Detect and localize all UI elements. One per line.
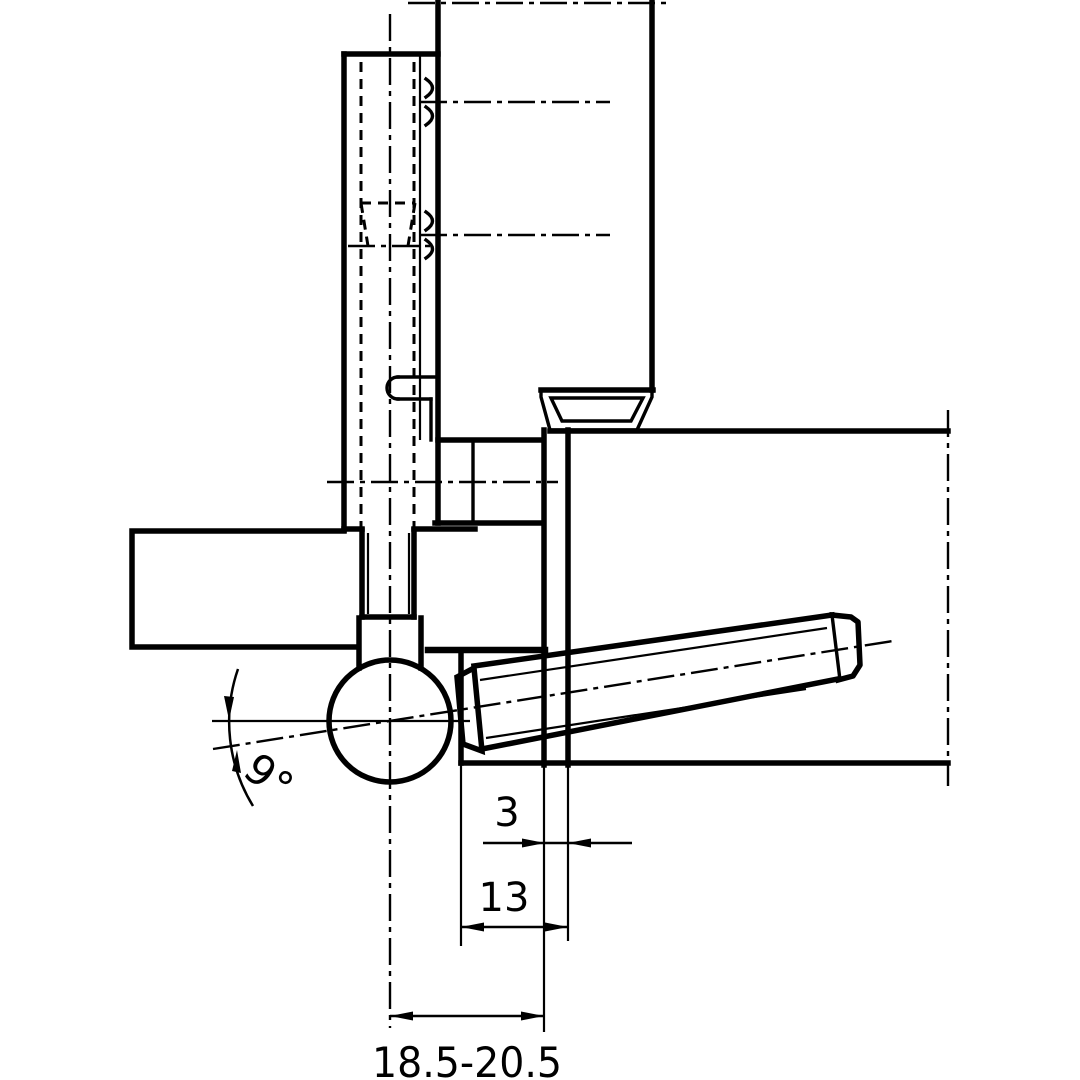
dim185-arrow-left xyxy=(390,1012,413,1021)
screw-countersink-arc-2 xyxy=(426,107,433,125)
flap-hook-round-end xyxy=(387,377,398,399)
angle-label: 9° xyxy=(235,743,303,811)
dim13-arrow-right xyxy=(545,923,568,932)
door-stop-block xyxy=(132,531,358,647)
screw-countersink-arc-3 xyxy=(426,212,433,230)
pin-highlight-bottom xyxy=(486,689,806,738)
drill-distance-label: 18.5-20.5 xyxy=(372,1038,562,1080)
dim3-arrow-right xyxy=(568,839,591,848)
frame-profile xyxy=(428,430,948,765)
seal-inner-profile xyxy=(551,398,643,421)
dim13-arrow-left xyxy=(461,923,484,932)
dimension-drill-distance: 18.5-20.5 xyxy=(372,765,562,1080)
hinge-pin xyxy=(457,615,860,751)
dimension-rebate-gap: 3 xyxy=(483,790,632,848)
door-seal xyxy=(541,390,652,430)
pin-bottom-edge xyxy=(482,679,838,749)
hinge-flap xyxy=(344,54,475,530)
hidden-drill-hole xyxy=(361,62,415,528)
centerlines xyxy=(213,3,948,1028)
technical-drawing-page: 9° 3 13 18.5-20.5 xyxy=(0,0,1080,1080)
hinge-technical-drawing: 9° 3 13 18.5-20.5 xyxy=(0,0,1080,1080)
pin-cap-separation xyxy=(832,615,840,680)
screw-countersink-arc-1 xyxy=(426,79,433,97)
dim185-arrow-right xyxy=(521,1012,544,1021)
screw-countersink-arc-4 xyxy=(426,240,433,258)
stop-block-outline xyxy=(132,531,358,647)
dim3-arrow-left xyxy=(522,839,545,848)
overlap-label: 13 xyxy=(479,875,530,921)
pin-highlight-top xyxy=(480,628,827,680)
angle-arrow-upper xyxy=(224,696,234,720)
gap-label: 3 xyxy=(494,790,519,836)
